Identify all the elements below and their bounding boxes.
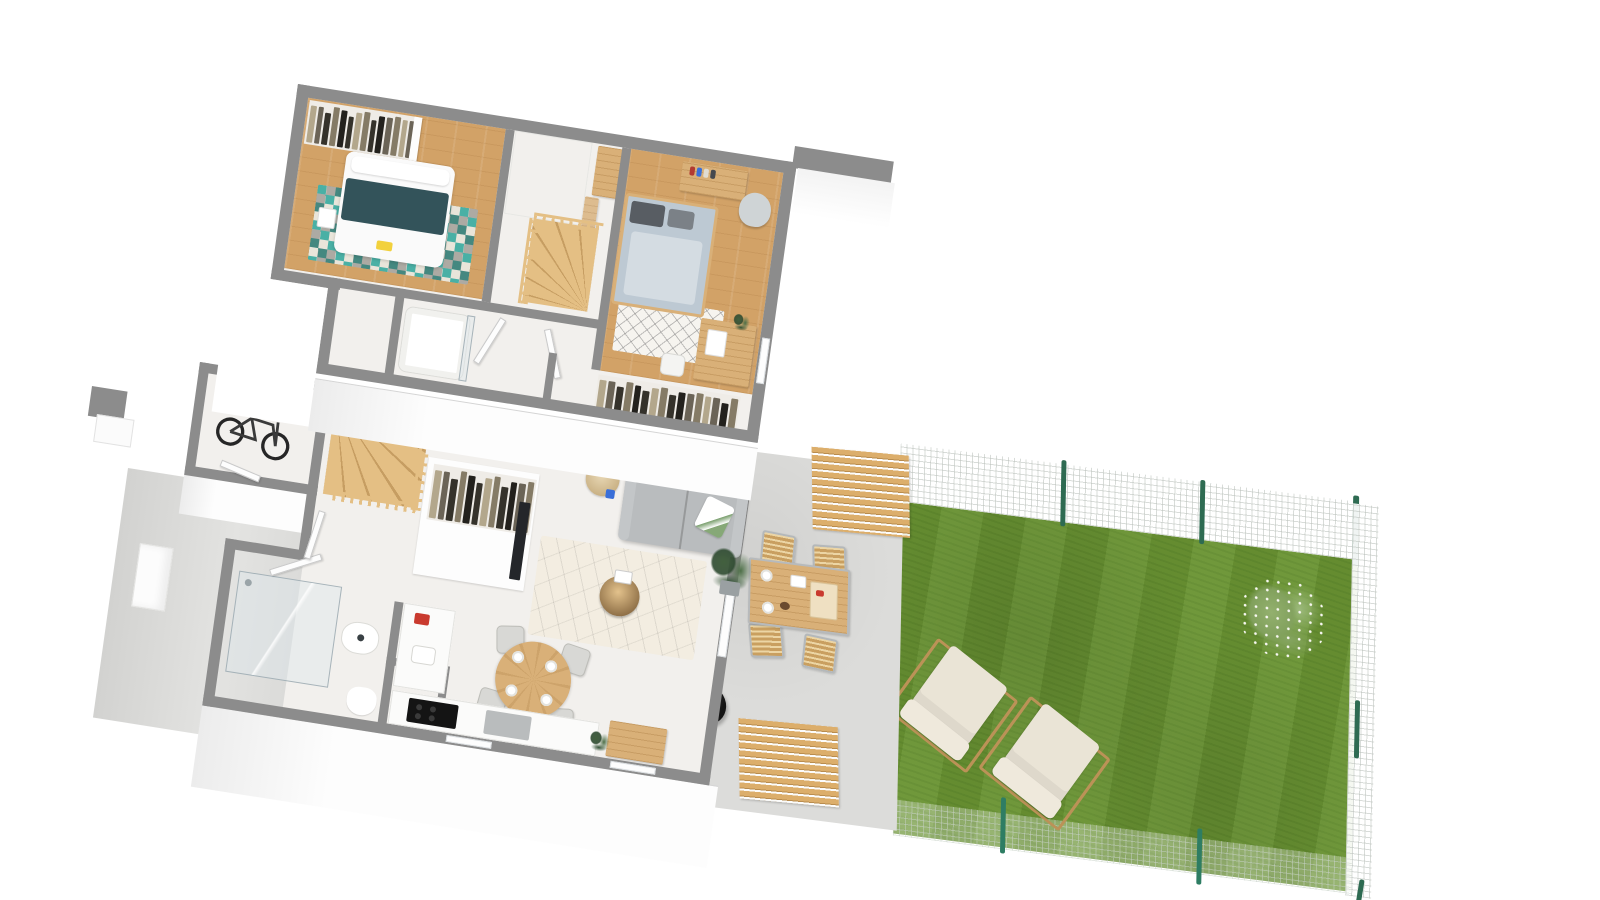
- dark-pillow: [667, 208, 695, 230]
- outdoor-chair: [801, 633, 838, 674]
- fence-post: [1196, 828, 1202, 885]
- bedroom-2: [599, 149, 783, 395]
- desk-papers: [704, 329, 727, 358]
- walk-in-shower: [225, 571, 342, 688]
- dresser-books: [689, 166, 695, 176]
- yellow-accent: [376, 240, 393, 251]
- boundary-wall-fragment-face: [93, 414, 134, 448]
- upper-floor-plan: [256, 84, 807, 461]
- dressing-unit: [413, 457, 540, 591]
- notebook: [790, 575, 806, 589]
- garden: [842, 495, 1406, 900]
- small-plant: [586, 727, 613, 755]
- bedroom-1: [284, 98, 506, 299]
- dresser: [679, 161, 748, 201]
- plate: [505, 684, 519, 698]
- coffee-table-books: [613, 569, 633, 585]
- sofa-seam: [679, 487, 690, 549]
- plate: [762, 601, 774, 615]
- nightstand: [316, 207, 337, 230]
- outdoor-chair: [748, 623, 784, 658]
- plate: [544, 660, 558, 674]
- blue-decor-item: [605, 489, 615, 499]
- privacy-screen-top: [812, 447, 910, 538]
- shower-glass-reflection: [226, 572, 341, 687]
- double-bed-1: [333, 150, 456, 268]
- double-bed-2: [611, 192, 719, 318]
- breakfast-tray: [810, 581, 838, 621]
- teal-throw: [341, 177, 449, 236]
- landing-room: [504, 131, 593, 226]
- leaf-print-cushion: [694, 495, 736, 539]
- desk-plant: [730, 311, 753, 334]
- plant-pot: [719, 580, 741, 597]
- fruit: [816, 590, 824, 597]
- desk-chair: [659, 352, 686, 378]
- exterior-cutout: [212, 273, 328, 427]
- cooktop: [406, 698, 459, 730]
- plate: [540, 693, 554, 707]
- plate: [511, 650, 525, 664]
- wall: [224, 538, 308, 561]
- sun-lounger: [983, 705, 1106, 822]
- coffee-cup: [780, 601, 790, 610]
- floor-plan-render: [0, 0, 1600, 900]
- dark-pillow: [629, 201, 666, 228]
- duvet-fold: [623, 231, 703, 306]
- desk: [693, 318, 757, 388]
- outdoor-table: [748, 557, 851, 636]
- red-small-appliance: [414, 613, 430, 626]
- basin-drain: [357, 634, 365, 642]
- flowering-shrub: [1233, 566, 1334, 671]
- privacy-screen-bottom: [739, 718, 839, 808]
- kitchen-sink: [410, 645, 436, 667]
- sink-unit: [483, 710, 532, 741]
- plate: [761, 569, 773, 583]
